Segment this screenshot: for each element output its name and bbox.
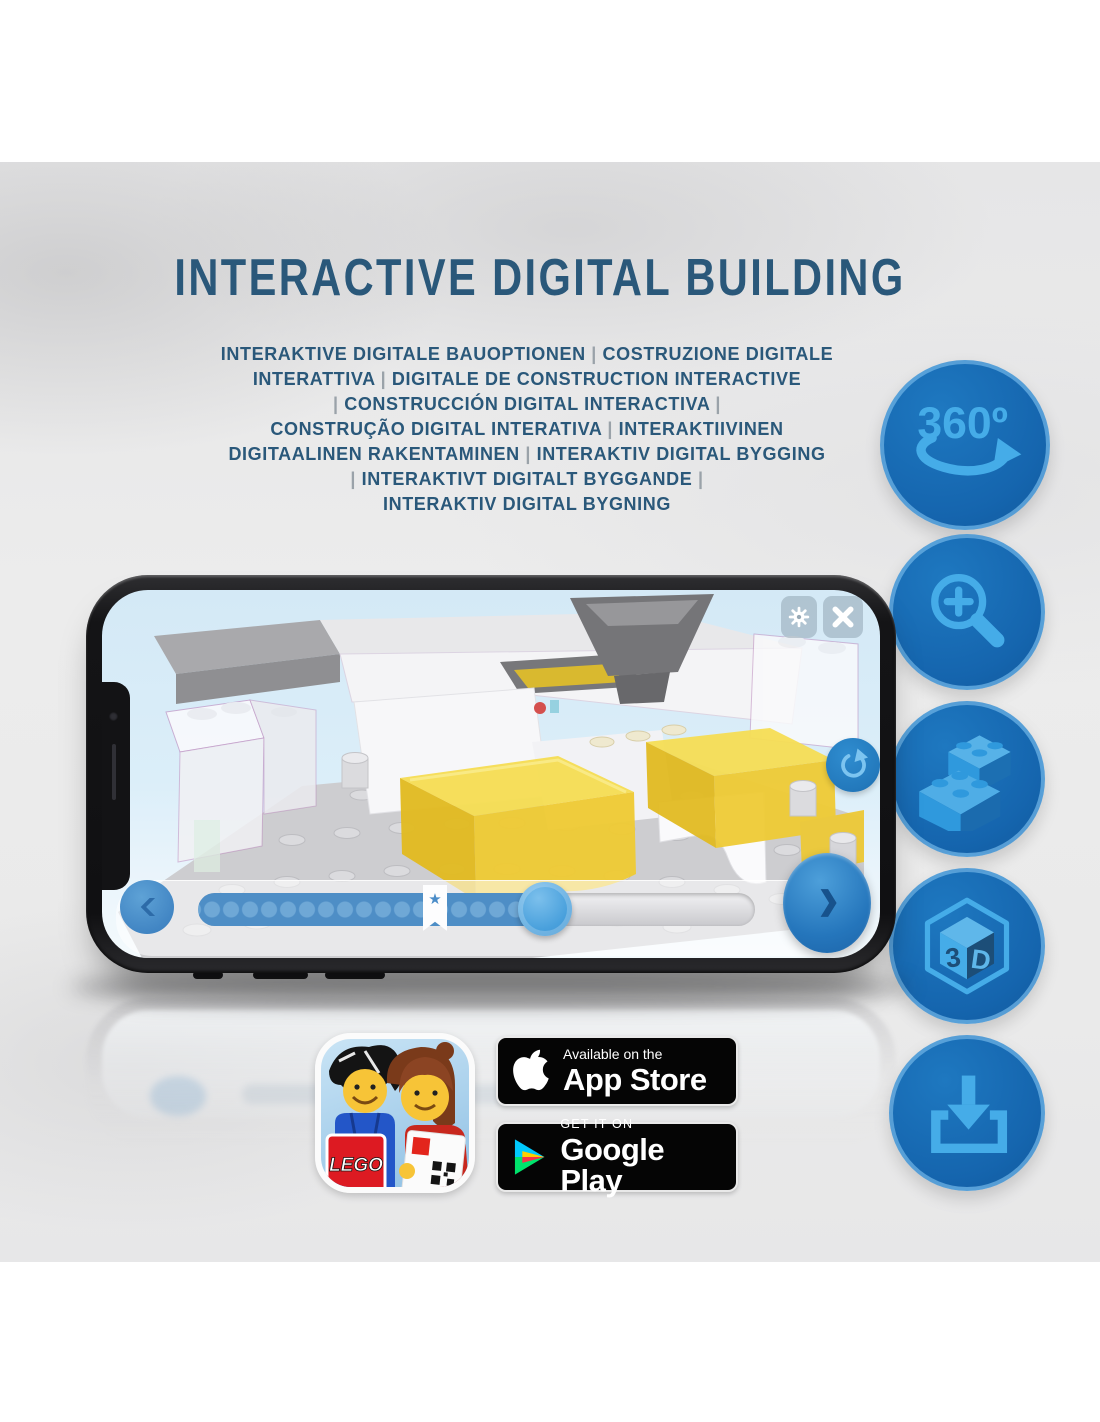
chevron-right-icon <box>814 887 840 919</box>
subtitle-line: CONSTRUÇÃO DIGITAL INTERATIVA | INTERAKT… <box>117 417 937 442</box>
chevron-left-icon <box>138 896 156 918</box>
previous-step-button[interactable] <box>120 880 174 934</box>
gear-icon <box>784 602 814 632</box>
speaker-slit <box>112 744 116 800</box>
google-play-tagline: GET IT ON <box>560 1118 722 1131</box>
lego-app-icon[interactable]: LEGO <box>315 1033 475 1193</box>
apple-icon <box>512 1048 550 1094</box>
smartphone: ★ <box>86 575 896 973</box>
feature-brick <box>889 701 1045 857</box>
feature-3d-view: 3 D <box>889 868 1045 1024</box>
feature-download <box>889 1035 1045 1191</box>
zoom-in-icon <box>915 560 1019 664</box>
google-play-icon <box>512 1135 547 1179</box>
app-store-tagline: Available on the <box>563 1047 707 1061</box>
phone-notch <box>102 682 130 890</box>
subtitle-line: INTERAKTIVE DIGITALE BAUOPTIONEN | COSTR… <box>117 342 937 367</box>
google-play-badge[interactable]: GET IT ON Google Play <box>496 1122 738 1192</box>
close-icon <box>829 603 857 631</box>
rotate-view-button[interactable] <box>826 738 880 792</box>
subtitle-line: INTERAKTIV DIGITAL BYGNING <box>117 492 937 517</box>
lego-app-artwork: LEGO <box>321 1039 469 1187</box>
subtitle-line: DIGITAALINEN RAKENTAMINEN | INTERAKTIV D… <box>117 442 937 467</box>
subtitle-line: | CONSTRUCCIÓN DIGITAL INTERACTIVA | <box>117 392 937 417</box>
app-store-name: App Store <box>563 1064 707 1095</box>
cube-d-label: D <box>969 944 993 976</box>
app-screen: ★ <box>102 590 880 958</box>
camera-dot <box>109 712 118 721</box>
rotate-icon <box>835 747 871 783</box>
page-title: INTERACTIVE DIGITAL BUILDING <box>108 248 972 308</box>
download-icon <box>915 1061 1019 1165</box>
progress-slider-knob[interactable] <box>518 882 572 936</box>
app-store-badge[interactable]: Available on the App Store <box>496 1036 738 1106</box>
progress-fill <box>198 893 545 926</box>
subtitle-multilingual: INTERAKTIVE DIGITALE BAUOPTIONEN | COSTR… <box>117 342 937 517</box>
build-progress-bar[interactable] <box>198 893 755 926</box>
subtitle-line: INTERATTIVA | DIGITALE DE CONSTRUCTION I… <box>117 367 937 392</box>
settings-button[interactable] <box>781 596 817 638</box>
next-step-button[interactable] <box>783 853 871 953</box>
close-button[interactable] <box>823 596 863 638</box>
google-play-name: Google Play <box>560 1134 722 1196</box>
lego-app-marketing-image: INTERACTIVE DIGITAL BUILDING INTERAKTIVE… <box>0 0 1100 1422</box>
subtitle-line: | INTERAKTIVT DIGITALT BYGGANDE | <box>117 467 937 492</box>
phone-reflection <box>86 998 896 1148</box>
feature-zoom <box>889 534 1045 690</box>
lego-brick-icon <box>915 727 1019 831</box>
lego-logo-text: LEGO <box>329 1155 383 1176</box>
3d-view-icon: 3 D <box>915 894 1019 998</box>
